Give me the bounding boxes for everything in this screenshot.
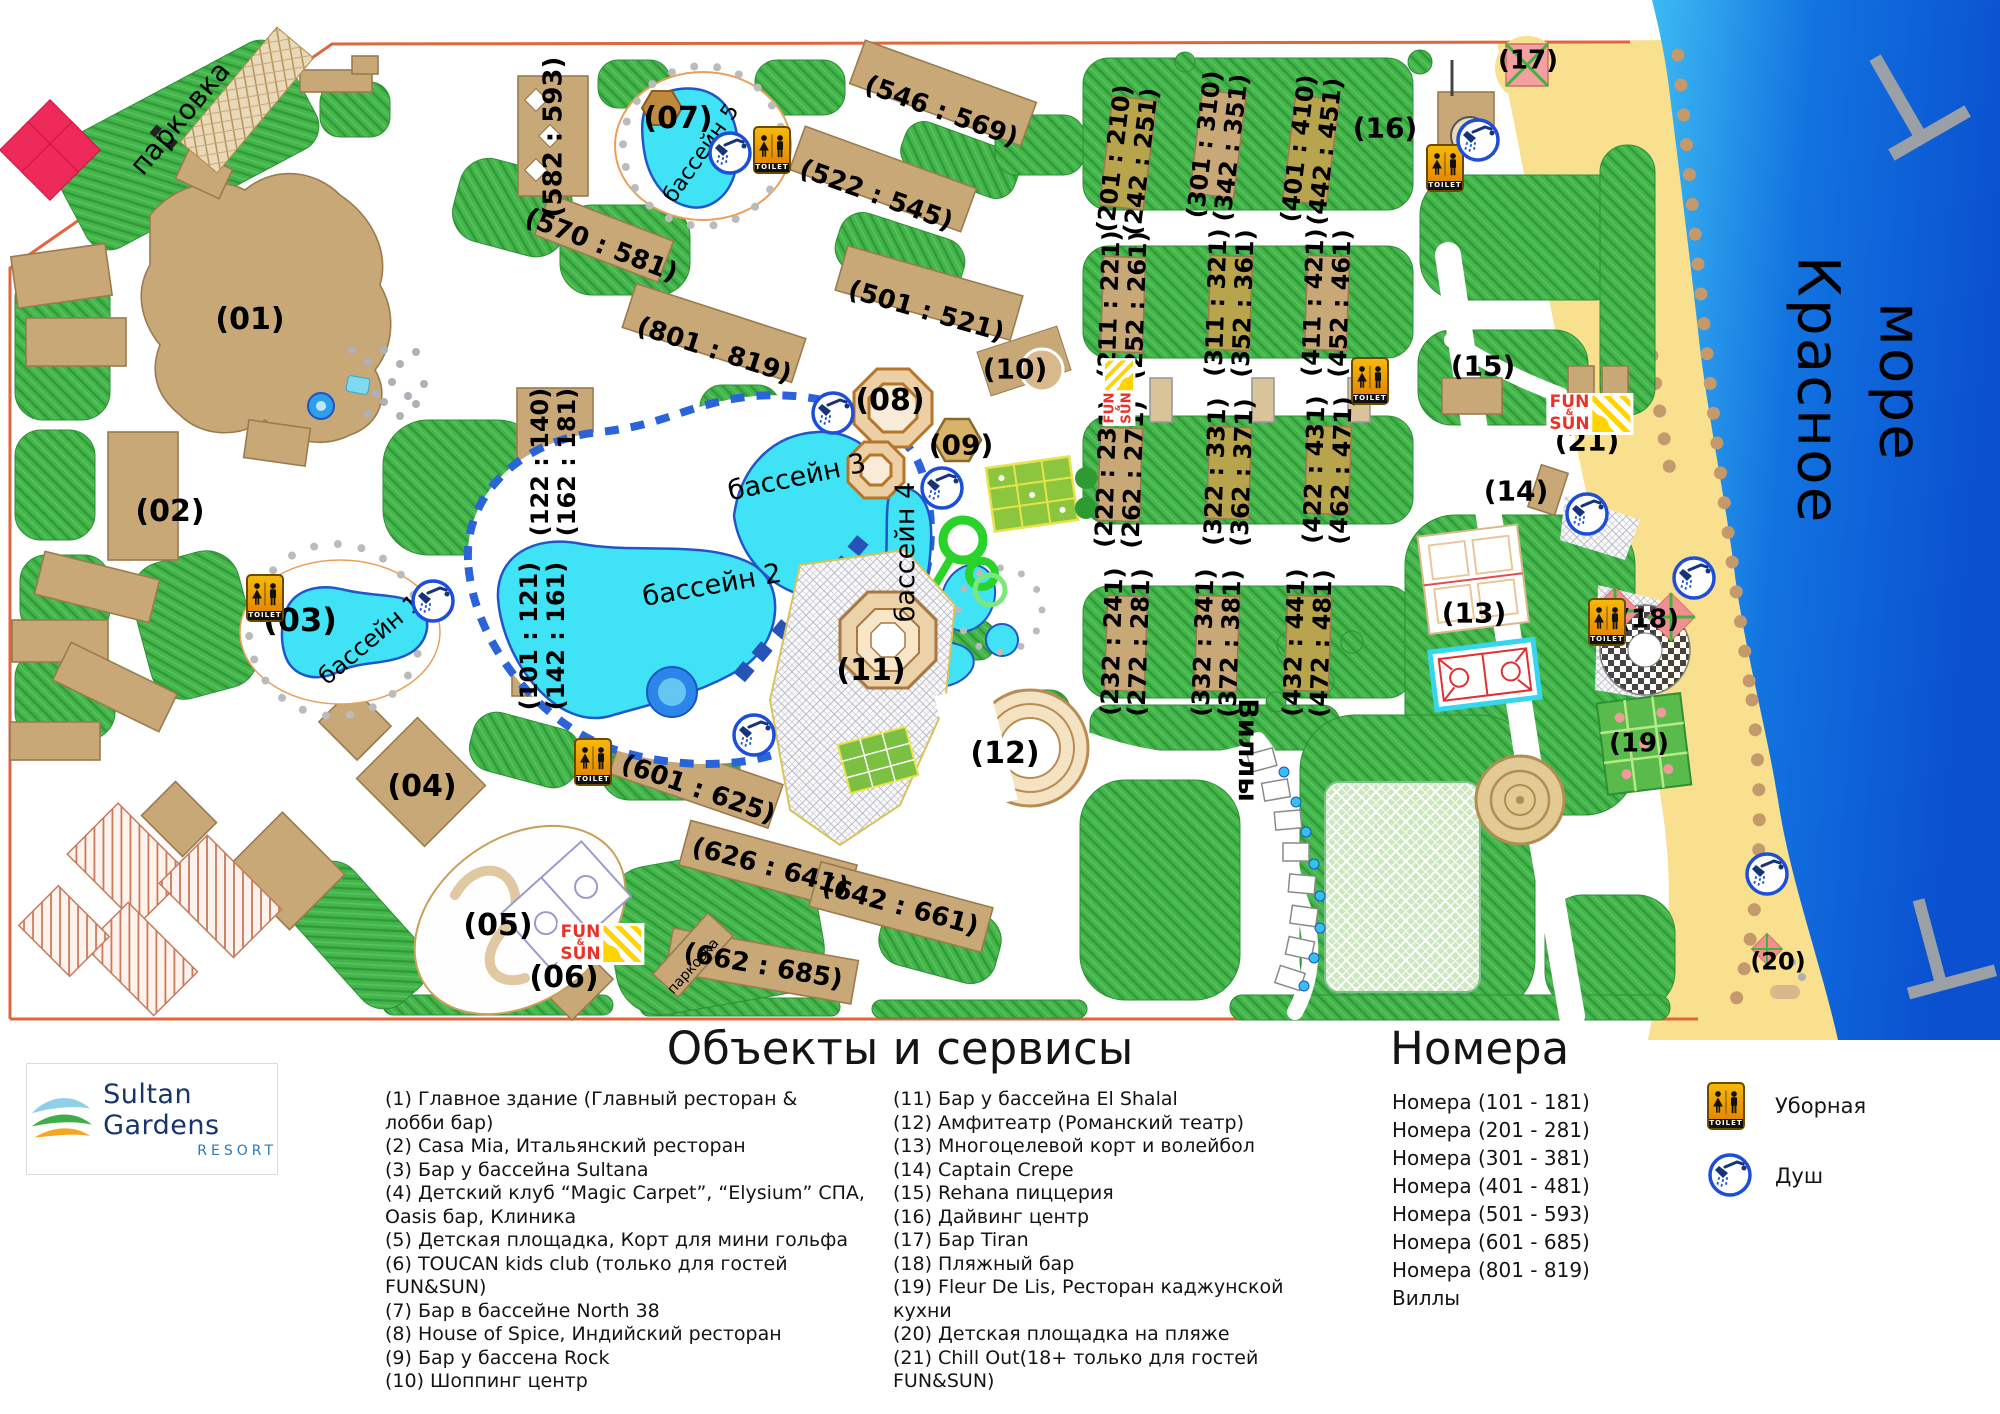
funsun-logo: FUN&SUN (1103, 358, 1136, 426)
map-label-num-12: (12) (970, 737, 1039, 771)
rooms-item-8: Виллы (1392, 1284, 1590, 1312)
shower-icon (1564, 491, 1610, 537)
map-label-villas: Виллы (1232, 698, 1262, 801)
service-item-5: (15) Rehana пиццерия (893, 1182, 1343, 1206)
service-item-3: (3) Бар у бассейна Sultana (385, 1159, 910, 1183)
funsun-flag-icon (1593, 396, 1631, 432)
map-label-rng-311: (311 : 321) (352 : 361) (1201, 228, 1260, 378)
map-label-rng-432: (432 : 441) (472 : 481) (1279, 568, 1338, 718)
service-item-10: (10) Шоппинг центр (385, 1370, 910, 1394)
map-label-num-06: (06) (529, 961, 598, 995)
rooms-item-7: Номера (801 - 819) (1392, 1256, 1590, 1284)
toilet-sign-text: TOILET (1590, 635, 1624, 644)
map-label-num-09: (09) (929, 429, 994, 460)
funsun-flag-icon (1105, 360, 1133, 390)
shower-icon (1744, 851, 1790, 897)
logo-subtitle: RESORT (103, 1143, 277, 1159)
toilet-sign-text: TOILET (1353, 394, 1387, 403)
restroom-figures-icon (756, 128, 788, 163)
funsun-logo: FUN&SUN (1546, 393, 1633, 435)
toilet-legend-icon-slot: TOILET (1705, 1080, 1757, 1132)
map-overlay: парковка(01)(02)(03)(04)(05)(06)(07)(08)… (0, 0, 2000, 1040)
service-item-1: (1) Главное здание (Главный ресторан & л… (385, 1088, 910, 1135)
service-item-4: (14) Captain Crepe (893, 1159, 1343, 1183)
restroom-figures-icon (577, 740, 609, 775)
service-item-1: (11) Бар у бассейна El Shalal (893, 1088, 1343, 1112)
toilet-sign-text: TOILET (1709, 1119, 1743, 1128)
map-label-rng-301: (301 : 310) (342 : 351) (1182, 69, 1253, 223)
map-label-num-16: (16) (1353, 112, 1418, 143)
map-label-rng-232: (232 : 241) (272 : 281) (1097, 567, 1156, 717)
map-label-num-20: (20) (1750, 949, 1805, 976)
map-label-num-17: (17) (1498, 46, 1558, 75)
shower-icon (731, 712, 777, 758)
map-label-rng-570: (570 : 581) (521, 204, 682, 289)
map-label-num-08: (08) (855, 384, 924, 418)
service-item-4: (4) Детский клуб “Magic Carpet”, “Elysiu… (385, 1182, 910, 1229)
map-label-num-05: (05) (463, 909, 532, 943)
funsun-logo: FUN&SUN (557, 923, 644, 965)
map-label-rng-601: (601 : 625) (617, 750, 779, 830)
map-label-rng-101: (101 : 121) (142 : 161) (516, 562, 570, 710)
toilet-icon: TOILET (246, 574, 284, 622)
shower-icon (707, 130, 753, 176)
map-label-num-04: (04) (387, 770, 456, 804)
map-label-rng-122: (122 : 140) (162 : 181) (527, 388, 581, 536)
shower-icon (810, 390, 856, 436)
toilet-sign-text: TOILET (1428, 181, 1462, 190)
rooms-title: Номера (1390, 1022, 1569, 1075)
map-label-num-01: (01) (215, 303, 284, 337)
toilet-icon: TOILET (1351, 357, 1389, 405)
service-item-8: (18) Пляжный бар (893, 1253, 1343, 1277)
service-item-8: (8) House of Spice, Индийский ресторан (385, 1323, 910, 1347)
map-label-rng-546: (546 : 569) (860, 71, 1021, 153)
service-item-9: (19) Fleur De Lis, Ресторан каджунской к… (893, 1276, 1343, 1323)
service-item-9: (9) Бар у бассена Rock (385, 1347, 910, 1371)
map-label-rng-332: (332 : 341) (372 : 381) (1188, 568, 1247, 718)
toilet-legend-label: Уборная (1775, 1094, 1866, 1118)
toilet-sign-text: TOILET (755, 163, 789, 172)
funsun-flag-icon (604, 926, 642, 962)
restroom-figures-icon (1354, 359, 1386, 394)
map-label-rng-582: (582 : 593) (539, 57, 568, 218)
map-label-num-14: (14) (1484, 475, 1549, 506)
map-label-num-15: (15) (1451, 350, 1516, 381)
toilet-sign-text: TOILET (576, 775, 610, 784)
toilet-icon: TOILET (1588, 598, 1626, 646)
rooms-item-4: Номера (401 - 481) (1392, 1172, 1590, 1200)
funsun-wordmark: FUN&SUN (560, 926, 600, 961)
funsun-wordmark: FUN&SUN (1105, 392, 1132, 423)
service-item-6: (16) Дайвинг центр (893, 1206, 1343, 1230)
map-label-rng-522: (522 : 545) (795, 155, 956, 237)
map-label-rng-322: (322 : 331) (362 : 371) (1200, 397, 1259, 547)
rooms-item-6: Номера (601 - 685) (1392, 1228, 1590, 1256)
map-label-pool-4: бассейн 4 (891, 482, 921, 622)
toilet-icon: TOILET (1707, 1082, 1745, 1130)
map-label-num-10: (10) (983, 353, 1048, 384)
shower-icon (919, 465, 965, 511)
map-label-parking-main: парковка (124, 55, 237, 181)
service-item-3: (13) Многоцелевой корт и волейбол (893, 1135, 1343, 1159)
restroom-figures-icon (1591, 600, 1623, 635)
shower-icon (1707, 1152, 1753, 1198)
toilet-icon: TOILET (753, 126, 791, 174)
services-list-col2: (11) Бар у бассейна El Shalal(12) Амфите… (893, 1088, 1343, 1394)
service-item-7: (7) Бар в бассейне North 38 (385, 1300, 910, 1324)
map-label-rng-801: (801 : 819) (633, 312, 795, 389)
logo-wave-icon (27, 1074, 95, 1164)
restroom-figures-icon (249, 576, 281, 611)
shower-icon (1455, 117, 1501, 163)
shower-legend-icon-slot (1705, 1150, 1757, 1202)
services-title: Объекты и сервисы (560, 1022, 1240, 1075)
map-label-pool-2: бассейн 2 (640, 559, 784, 613)
map-label-pool-3: бассейн 3 (725, 449, 869, 508)
map-label-rng-642: (642 : 661) (819, 872, 982, 942)
service-item-10: (20) Детская площадка на пляже (893, 1323, 1343, 1347)
resort-map-page: парковка(01)(02)(03)(04)(05)(06)(07)(08)… (0, 0, 2000, 1414)
rooms-item-5: Номера (501 - 593) (1392, 1200, 1590, 1228)
map-label-sea-2: море (1868, 302, 1933, 462)
rooms-item-1: Номера (101 - 181) (1392, 1088, 1590, 1116)
toilet-icon: TOILET (574, 738, 612, 786)
map-label-num-02: (02) (135, 495, 204, 529)
shower-icon (1671, 555, 1717, 601)
map-label-num-18: (18) (1619, 605, 1679, 634)
service-item-6: (6) TOUCAN kids club (только для гостей … (385, 1253, 910, 1300)
rooms-list: Номера (101 - 181)Номера (201 - 281)Номе… (1392, 1088, 1590, 1312)
map-label-num-19: (19) (1609, 729, 1669, 758)
map-label-rng-201: (201 : 210) (242 : 251) (1092, 83, 1163, 237)
service-item-11: (21) Chill Out(18+ только для гостей FUN… (893, 1347, 1343, 1394)
service-item-7: (17) Бар Tiran (893, 1229, 1343, 1253)
legend: Объекты и сервисы Номера (1) Главное зда… (0, 1040, 2000, 1414)
rooms-item-2: Номера (201 - 281) (1392, 1116, 1590, 1144)
map-label-sea-1: Красное (1786, 256, 1851, 525)
shower-icon (410, 578, 456, 624)
map-label-rng-411: (411 : 421) (452 : 461) (1298, 228, 1357, 378)
funsun-wordmark: FUN&SUN (1549, 396, 1589, 431)
services-list-col1: (1) Главное здание (Главный ресторан & л… (385, 1088, 910, 1394)
map-label-rng-401: (401 : 410) (442 : 451) (1276, 73, 1347, 227)
resort-logo: Sultan Gardens RESORT (26, 1063, 278, 1175)
map-label-num-13: (13) (1442, 597, 1507, 628)
service-item-5: (5) Детская площадка, Корт для мини голь… (385, 1229, 910, 1253)
toilet-sign-text: TOILET (248, 611, 282, 620)
logo-name: Sultan Gardens (103, 1079, 277, 1141)
map-label-rng-501: (501 : 521) (845, 276, 1008, 348)
rooms-item-3: Номера (301 - 381) (1392, 1144, 1590, 1172)
map-label-rng-422: (422 : 431) (462 : 471) (1299, 395, 1358, 545)
service-item-2: (12) Амфитеатр (Романский театр) (893, 1112, 1343, 1136)
shower-legend-label: Душ (1775, 1164, 1823, 1188)
restroom-figures-icon (1710, 1084, 1742, 1119)
service-item-2: (2) Casa Mia, Итальянский ресторан (385, 1135, 910, 1159)
map-label-num-11: (11) (836, 654, 905, 688)
legend-key: TOILET Уборная Душ (1705, 1080, 1866, 1220)
